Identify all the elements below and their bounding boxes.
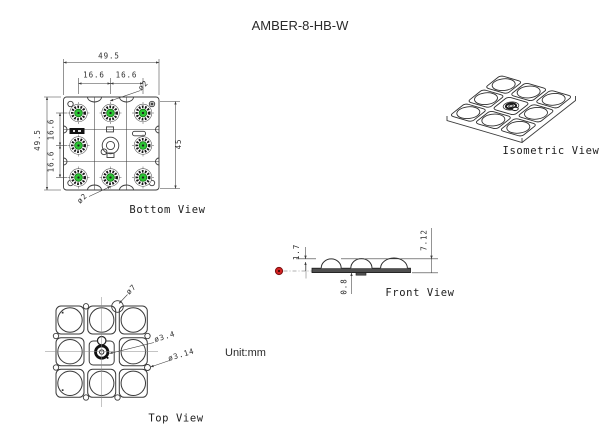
led-pad [68, 167, 90, 189]
lens-cell [119, 369, 147, 397]
dim-hole-top: ø2 [136, 78, 150, 92]
lens-dome [351, 259, 372, 269]
led-pad [132, 135, 154, 157]
lens-cell [56, 369, 84, 397]
notch [53, 333, 58, 338]
top-view: ø7 ø3.4 ø3.14 Top View [45, 282, 204, 424]
connector-bump [356, 273, 366, 276]
lens-cell [119, 306, 147, 334]
technical-drawing: AMBER-8-HB-W [0, 0, 609, 441]
dim-lens-height: 1.7 [292, 244, 301, 260]
pcb-profile [312, 268, 411, 272]
led-pad [100, 167, 122, 189]
notch [83, 304, 88, 309]
unit-note: Unit:mm [225, 347, 266, 359]
dim-hole-bottom: ø2 [75, 191, 89, 205]
dim-total-height: 7.12 [420, 229, 429, 251]
led-pad [100, 102, 122, 124]
label-chip [70, 128, 85, 134]
dim-col-pitch-left: 16.6 [83, 71, 105, 80]
drawing-page: AMBER-8-HB-W [0, 0, 609, 441]
lens-dome [381, 258, 408, 268]
top-view-label: Top View [148, 413, 203, 425]
label-chip-mark [78, 130, 81, 132]
led-pad [68, 135, 90, 157]
dim-edge-hole: ø3.14 [167, 346, 196, 363]
label-chip-mark [73, 130, 75, 132]
led-pad [68, 102, 90, 124]
dim-row-pitch-top: 16.6 [47, 119, 56, 141]
notch [53, 365, 58, 370]
isometric-board [450, 75, 572, 136]
led-pad [132, 102, 154, 124]
fiducial [62, 389, 64, 391]
isometric-view-label: Isometric View [503, 145, 600, 157]
origin-marker-center [278, 270, 280, 272]
front-view: 1.7 0.8 7.12 Front View [275, 228, 454, 299]
lens-dome [321, 259, 341, 268]
bottom-view-label: Bottom View [129, 204, 205, 216]
dim-center-hole: ø3.4 [153, 329, 176, 344]
dim-col-pitch-right: 16.6 [116, 71, 138, 80]
dim-overall-width: 49.5 [98, 52, 120, 61]
isometric-view: Isometric View [447, 75, 600, 157]
mounting-hole [68, 101, 73, 106]
lens-cell [56, 306, 84, 334]
notch [115, 395, 120, 400]
slot [133, 131, 146, 136]
fiducial [62, 312, 64, 314]
front-view-label: Front View [385, 287, 454, 299]
dim-pcb-thickness: 0.8 [340, 278, 349, 294]
dim-overall-height: 49.5 [33, 129, 42, 151]
dim-inner-height: 45 [174, 139, 183, 150]
page-title: AMBER-8-HB-W [252, 18, 350, 33]
notch [145, 333, 150, 338]
mounting-hole-fill [151, 103, 154, 106]
edge-hole [145, 365, 151, 371]
dim-lens-diameter: ø7 [124, 282, 138, 296]
bottom-view: 49.5 16.6 16.6 49.5 16.6 16.6 45 ø2 ø2 B… [33, 52, 206, 217]
dim-row-pitch-bottom: 16.6 [47, 151, 56, 173]
notch [83, 395, 88, 400]
center-connector [101, 137, 119, 155]
